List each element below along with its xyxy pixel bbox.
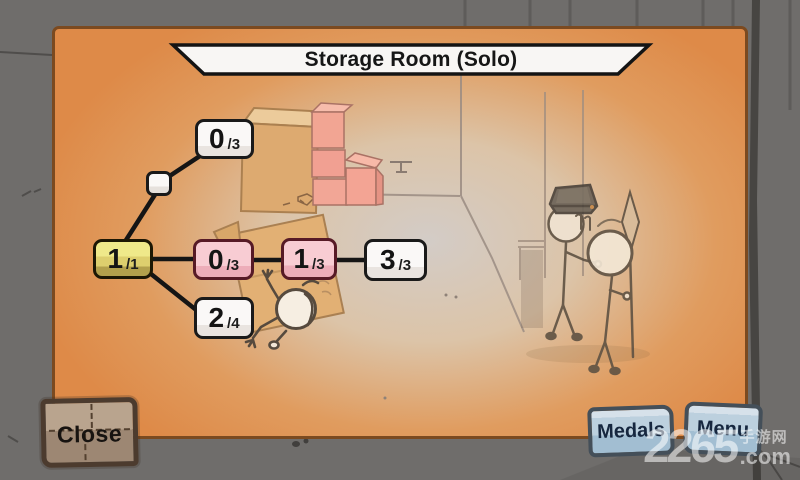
node-mid-right: 1/3: [281, 238, 337, 280]
node-bottom-branch: 2/4: [194, 297, 254, 339]
spear-icon: [622, 192, 639, 250]
node-value: 3: [380, 246, 396, 274]
box-logo-stamp: [283, 194, 314, 205]
node-value: 1: [107, 245, 123, 273]
node-branch-point: [146, 171, 172, 196]
floor-specks: [384, 294, 458, 400]
storage-room-scene: [55, 29, 745, 436]
medals-button-label: Medals: [597, 418, 666, 443]
wall-corner-lines: [340, 58, 524, 332]
menu-button-label: Menu: [696, 416, 749, 441]
game-screen: { "title_banner": { "label": "Storage Ro…: [0, 0, 800, 480]
node-root: 1/1: [93, 239, 153, 279]
guard-character: [547, 185, 602, 340]
node-total: /1: [126, 257, 139, 272]
node-total: /3: [227, 258, 240, 273]
spear-shaft: [630, 250, 633, 357]
node-total: /3: [312, 257, 325, 272]
node-total: /4: [227, 316, 240, 331]
node-mid-left: 0/3: [193, 239, 254, 280]
node-top-branch: 0/3: [195, 119, 254, 159]
node-value: 1: [293, 245, 309, 273]
menu-button[interactable]: Menu: [683, 401, 763, 456]
cardboard-box-large: [241, 108, 330, 213]
node-total: /3: [399, 258, 412, 273]
door-frame: [518, 90, 583, 328]
results-panel: [52, 26, 748, 439]
spear-character: [588, 192, 639, 374]
guard-hat-icon: [550, 185, 597, 213]
medals-button[interactable]: Medals: [587, 405, 675, 458]
close-button-label: Close: [46, 420, 134, 449]
crate-stack: [312, 103, 383, 205]
node-value: 0: [209, 125, 225, 153]
node-value: 2: [208, 304, 224, 332]
close-button[interactable]: Close: [40, 397, 138, 468]
room-title: Storage Room (Solo): [173, 46, 649, 74]
box-crumple-lines: [318, 281, 331, 295]
node-total: /3: [228, 137, 241, 152]
node-value: 0: [208, 246, 224, 274]
floor-pebbles: [292, 439, 309, 448]
node-right-end: 3/3: [364, 239, 427, 281]
character-shadow: [526, 345, 650, 363]
wall-t-mark: [390, 162, 412, 172]
henry-character: [246, 270, 318, 349]
